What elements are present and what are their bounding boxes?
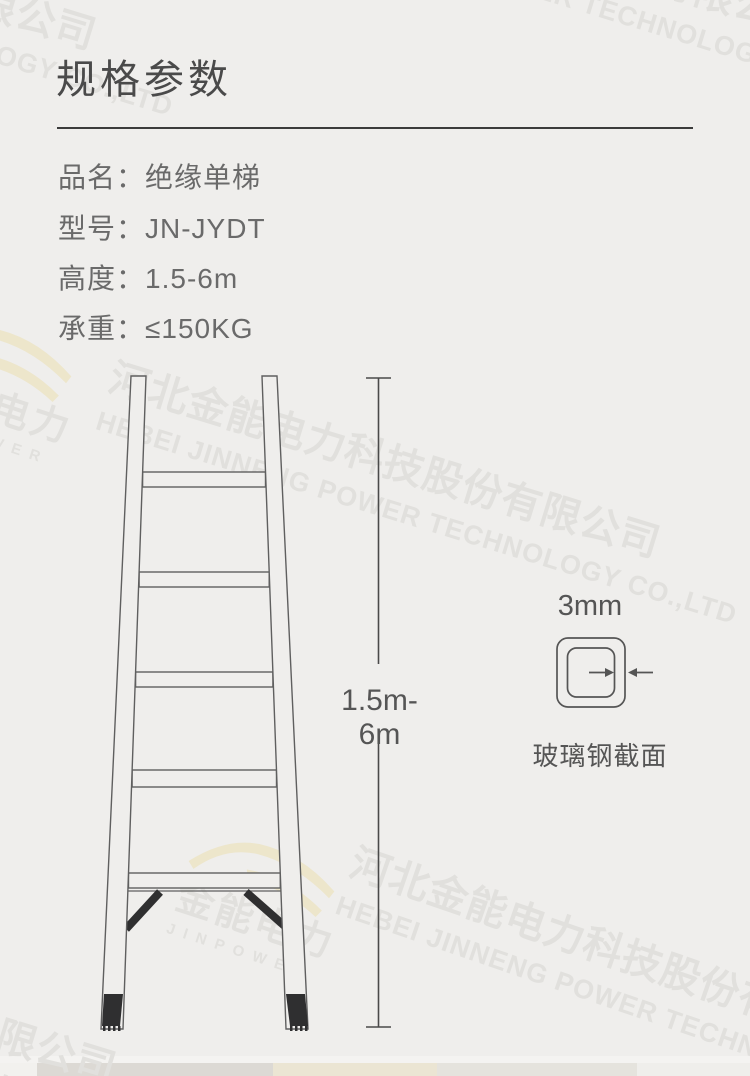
spec-label: 型号： [58, 213, 145, 244]
spec-row-model: 型号：JN-JYDT [58, 214, 266, 244]
watermark-company-bottom-left: 河北金能电力科技股份有限公司 HEBEI JINNENG POWER TECHN… [0, 884, 211, 1076]
spec-row-load: 承重：≤150KG [58, 314, 254, 344]
watermark-company-en: HEBEI JINNENG POWER TECHNOLOGY CO.,LTD [93, 408, 740, 629]
spec-value: ≤150KG [145, 313, 254, 344]
spec-label: 品名： [58, 162, 145, 193]
spec-value: 绝缘单梯 [145, 162, 261, 193]
ladder-rung [132, 770, 276, 787]
strip-segment [37, 1063, 273, 1076]
cross-section-inner [568, 648, 615, 697]
next-section-edge [0, 1063, 750, 1076]
watermark-company-bottom: 河北金能电力科技股份有限公司 HEBEI JINNENG POWER TECHN… [332, 843, 750, 1076]
height-range-label: 1.5m-6m [322, 684, 437, 752]
cross-section-label: 玻璃钢截面 [528, 736, 672, 773]
spec-row-height: 高度：1.5-6m [58, 264, 238, 294]
watermark-logo-en: JINPOWER [0, 406, 62, 471]
strip-segment [437, 1063, 637, 1076]
ladder-rail-left [101, 376, 146, 1029]
spec-value: 1.5-6m [145, 263, 238, 294]
ladder-brace-right [246, 892, 288, 929]
watermark-logo-cn: 金能电力 [171, 878, 339, 965]
watermark-company-cn: 河北金能电力科技股份有限公司 [258, 0, 750, 73]
watermark-company-cn: 河北金能电力科技股份有限公司 [104, 358, 750, 592]
cross-section-icon [557, 638, 653, 707]
watermark-company-top-right: 河北金能电力科技股份有限公司 HEBEI JINNENG POWER TECHN… [247, 0, 750, 110]
spec-value: JN-JYDT [145, 213, 266, 244]
spec-row-name: 品名：绝缘单梯 [58, 163, 261, 193]
ladder-rung [143, 472, 266, 487]
title-underline [57, 127, 693, 129]
watermark-logo-en: JINPOWER [165, 921, 326, 986]
strip-segment [0, 1063, 37, 1076]
ladder-brace-left [126, 892, 160, 929]
arrow-left-head [628, 668, 637, 677]
strip-segment [637, 1063, 750, 1076]
spec-label: 高度： [58, 263, 145, 294]
ladder-rung [136, 672, 273, 687]
watermark-logo-cn: 金能电力 [0, 363, 76, 450]
watermark-company-center: 河北金能电力科技股份有限公司 HEBEI JINNENG POWER TECHN… [93, 358, 750, 629]
spec-label: 承重： [58, 313, 145, 344]
ladder-rung [129, 873, 281, 888]
ladder-rung [139, 572, 269, 587]
watermark-company-en: HEBEI JINNENG POWER TECHNOLOGY CO.,LTD [247, 0, 750, 110]
section-divider [0, 1056, 750, 1063]
spec-sheet: 河北金能电力科技股份有限公司 HEBEI JINNENG POWER TECHN… [0, 0, 750, 1076]
ladder-foot-right [286, 994, 308, 1026]
watermark-company-en: HEBEI JINNENG POWER TECHNOLOGY CO.,LTD [332, 892, 750, 1076]
strip-segment [273, 1063, 437, 1076]
watermark-company-cn: 河北金能电力科技股份有限公司 [0, 884, 211, 1076]
watermark-logo-bottom: 金能电力 JINPOWER [165, 823, 357, 986]
ladder-drawing [101, 376, 308, 1029]
watermark-company-en: HEBEI JINNENG POWER TECHNOLOGY CO.,LTD [0, 934, 196, 1076]
ladder-foot-left [102, 994, 123, 1026]
ladder-rail-right [262, 376, 308, 1029]
arrow-right-head [605, 668, 614, 677]
watermark-company-cn: 河北金能电力科技股份有限公司 [345, 843, 750, 1076]
wall-thickness-label: 3mm [544, 590, 636, 623]
page-title: 规格参数 [56, 56, 232, 104]
cross-section-outer [557, 638, 625, 707]
logo-swoosh-icon [184, 823, 344, 923]
